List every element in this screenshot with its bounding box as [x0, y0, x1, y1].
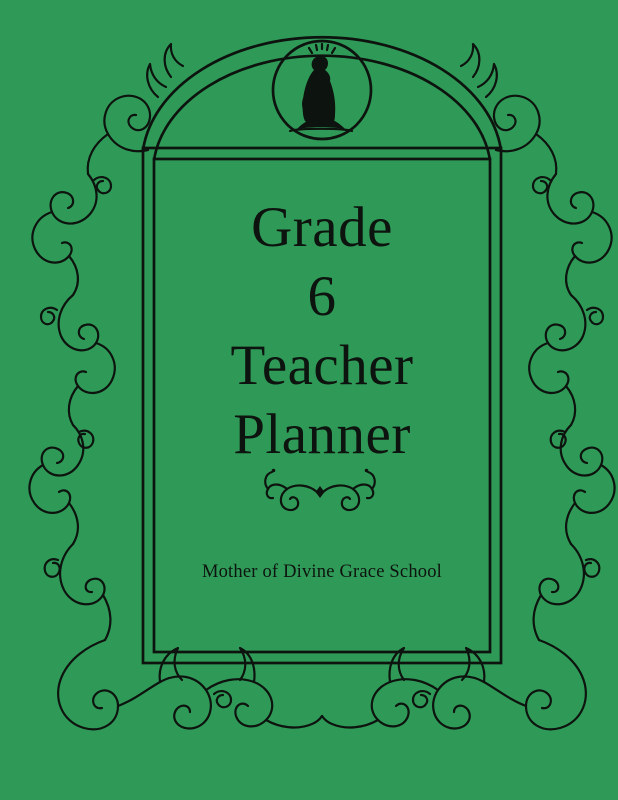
title-line-teacher: Teacher: [143, 331, 501, 400]
title-line-number: 6: [143, 262, 501, 331]
title-line-grade: Grade: [143, 193, 501, 262]
vine-scroll-bottom-left: [58, 640, 322, 729]
vine-scroll-bottom-right: [322, 640, 586, 729]
book-cover: Grade 6 Teacher Planner Mother of Divine…: [0, 0, 618, 800]
title-block: Grade 6 Teacher Planner: [143, 193, 501, 469]
title-line-planner: Planner: [143, 400, 501, 469]
school-name: Mother of Divine Grace School: [143, 560, 501, 584]
fleuron-flourish-icon: [265, 469, 375, 510]
